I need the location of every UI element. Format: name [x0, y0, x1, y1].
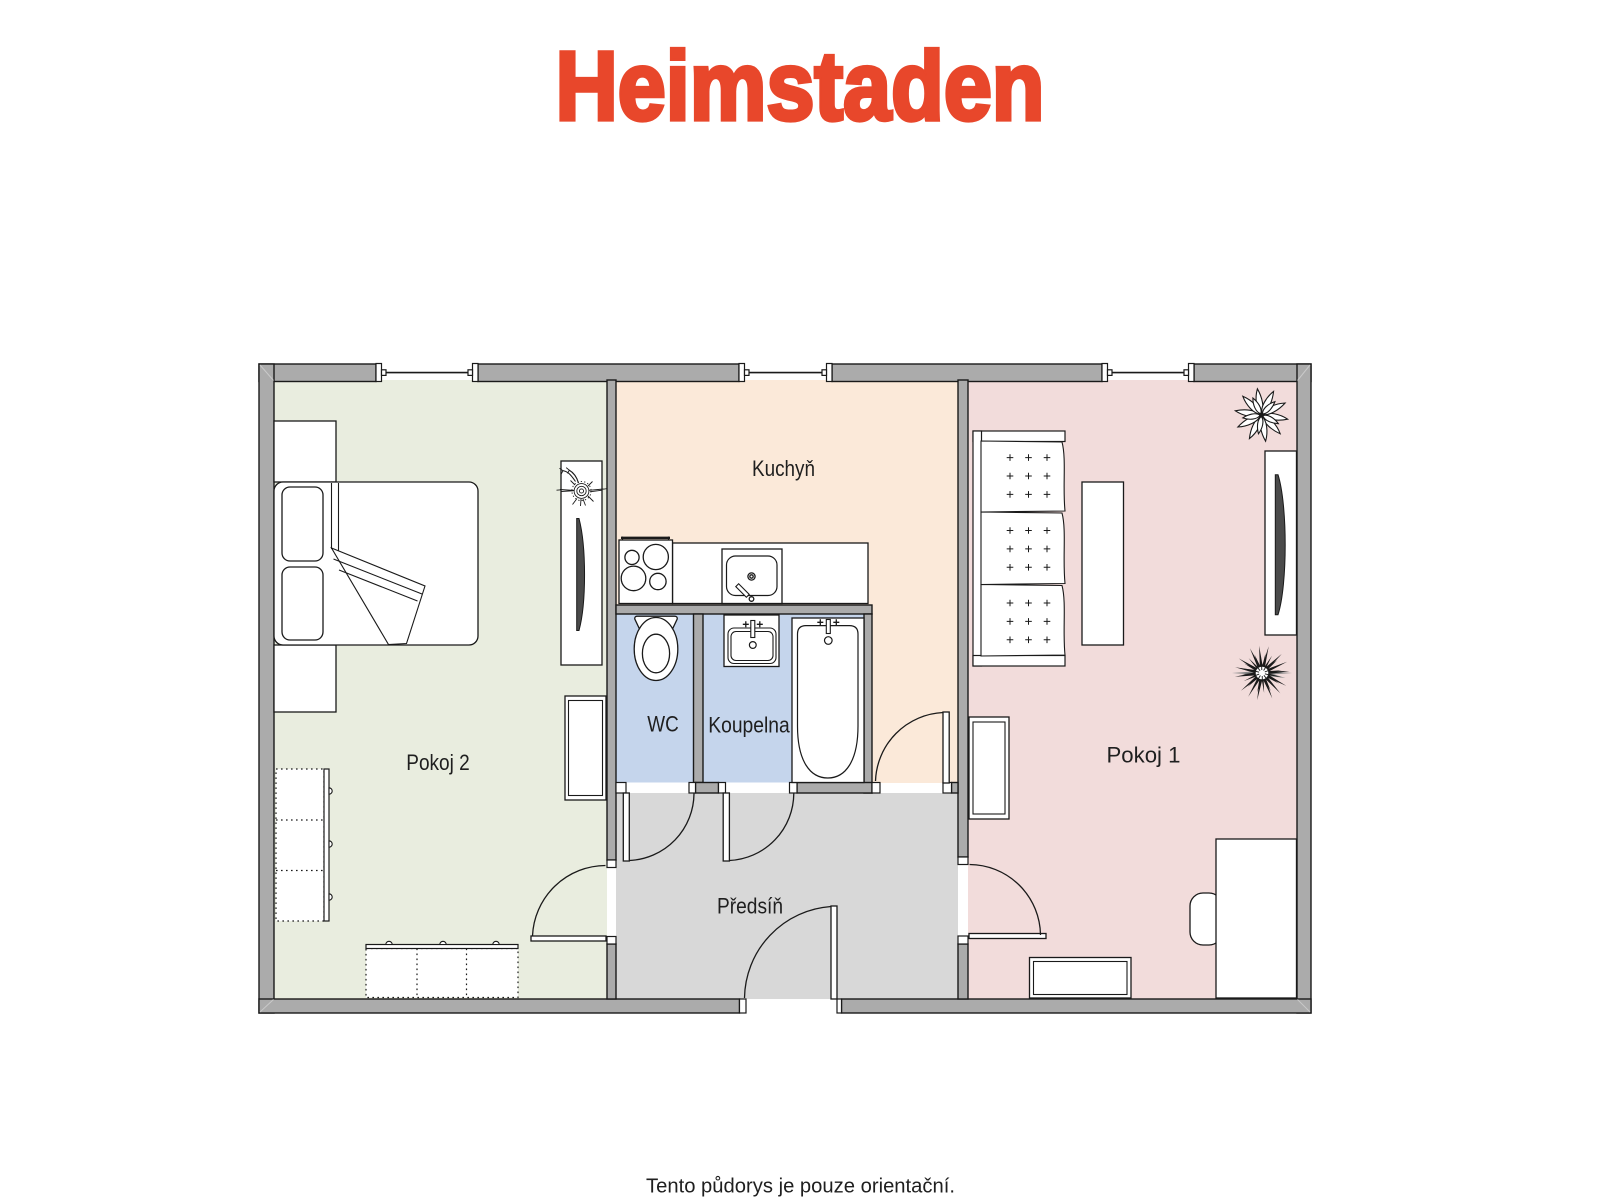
svg-text:Kuchyň: Kuchyň — [752, 456, 815, 481]
svg-text:Tento půdorys je pouze orienta: Tento půdorys je pouze orientační. — [646, 1176, 955, 1198]
svg-text:Předsíň: Předsíň — [717, 894, 783, 919]
svg-text:Heimstaden: Heimstaden — [556, 32, 1045, 141]
svg-text:Pokoj 1: Pokoj 1 — [1107, 743, 1181, 768]
svg-text:Pokoj 2: Pokoj 2 — [406, 750, 470, 775]
svg-text:WC: WC — [647, 712, 679, 737]
svg-text:Koupelna: Koupelna — [708, 713, 790, 738]
